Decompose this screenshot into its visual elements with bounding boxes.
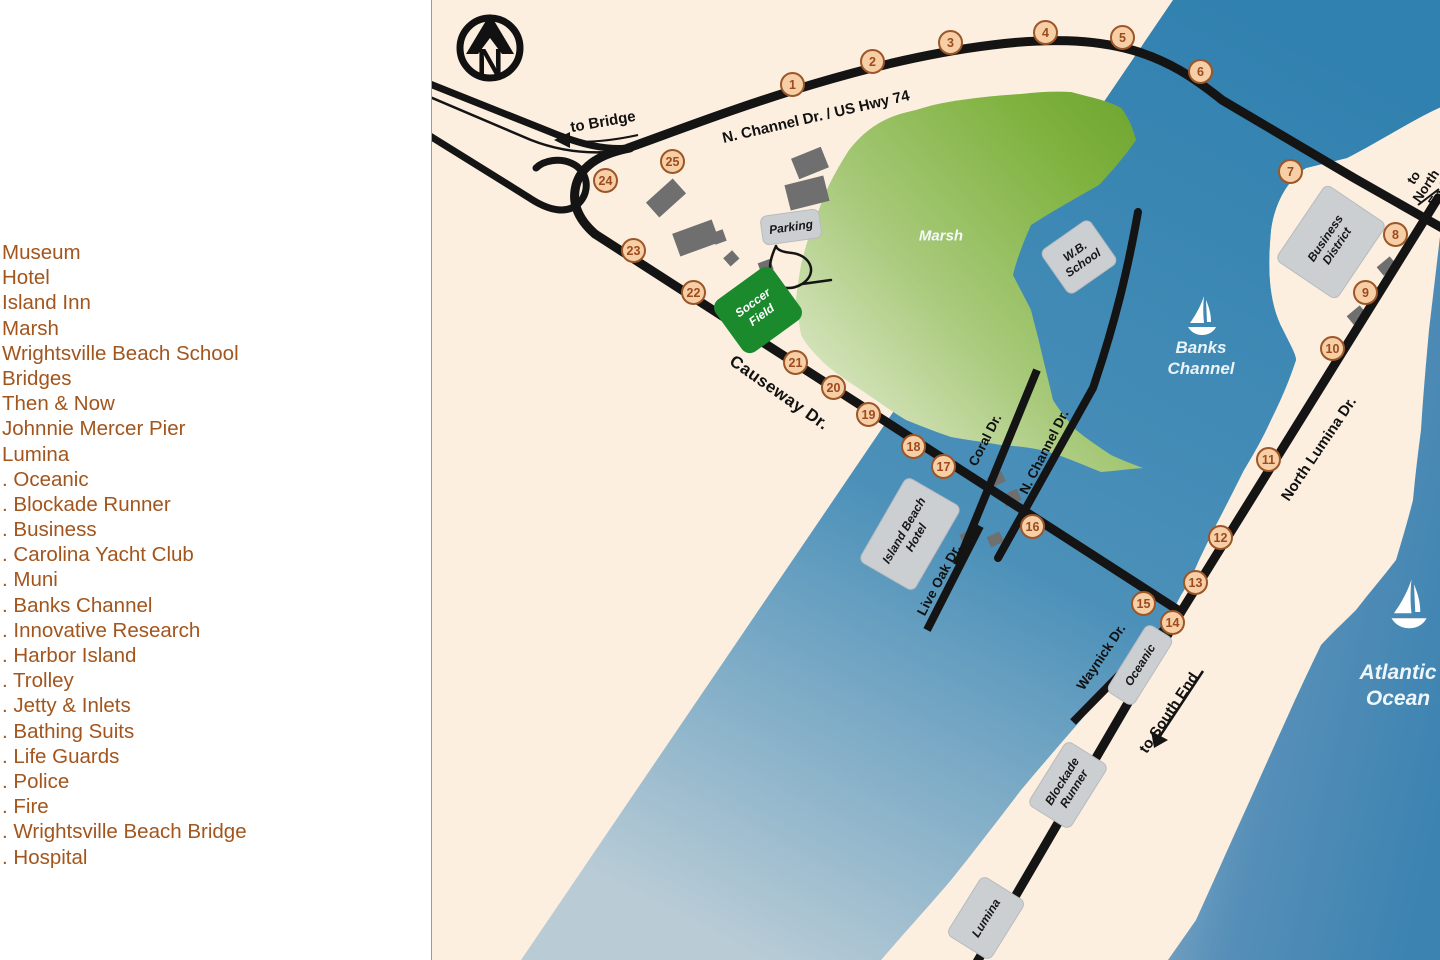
legend-item: . Blockade Runner bbox=[2, 492, 422, 517]
legend-item: . Trolley bbox=[2, 668, 422, 693]
legend-item: . Carolina Yacht Club bbox=[2, 542, 422, 567]
map-marker-19: 19 bbox=[856, 402, 881, 427]
map-marker-11: 11 bbox=[1256, 447, 1281, 472]
map-marker-10: 10 bbox=[1320, 336, 1345, 361]
legend-item: . Hospital bbox=[2, 845, 422, 870]
legend-item: Lumina bbox=[2, 442, 422, 467]
map-marker-14: 14 bbox=[1160, 610, 1185, 635]
legend-item: . Harbor Island bbox=[2, 643, 422, 668]
map-marker-23: 23 bbox=[621, 238, 646, 263]
business-district-building-label: Business District bbox=[1304, 212, 1357, 272]
wb-school-building-label: W.B. School bbox=[1055, 234, 1104, 280]
lumina-building-label: Lumina bbox=[969, 896, 1003, 940]
map-marker-17: 17 bbox=[931, 454, 956, 479]
atlantic-ocean-label: Atlantic Ocean bbox=[1359, 660, 1436, 712]
map-marker-21: 21 bbox=[783, 350, 808, 375]
map-marker-13: 13 bbox=[1183, 570, 1208, 595]
map-marker-15: 15 bbox=[1131, 591, 1156, 616]
legend-item: . Fire bbox=[2, 794, 422, 819]
legend-item: . Life Guards bbox=[2, 744, 422, 769]
legend-item: . Muni bbox=[2, 567, 422, 592]
legend-item: . Oceanic bbox=[2, 467, 422, 492]
page: { "legend": { "items": [ "Museum", "Hote… bbox=[0, 0, 1440, 960]
north-compass-icon: N bbox=[460, 14, 520, 82]
banks-channel-label: Banks Channel bbox=[1167, 337, 1234, 379]
legend-item: Hotel bbox=[2, 265, 422, 290]
map-marker-24: 24 bbox=[593, 168, 618, 193]
svg-text:N: N bbox=[477, 41, 503, 82]
legend-item: . Bathing Suits bbox=[2, 719, 422, 744]
map-marker-5: 5 bbox=[1110, 25, 1135, 50]
map-marker-2: 2 bbox=[860, 49, 885, 74]
map-marker-6: 6 bbox=[1188, 59, 1213, 84]
map-marker-1: 1 bbox=[780, 72, 805, 97]
map-marker-22: 22 bbox=[681, 280, 706, 305]
legend-item: . Innovative Research bbox=[2, 618, 422, 643]
map: Soccer Field bbox=[431, 0, 1440, 960]
legend-item: Island Inn bbox=[2, 290, 422, 315]
legend-item: . Wrightsville Beach Bridge bbox=[2, 819, 422, 844]
legend-item: . Police bbox=[2, 769, 422, 794]
parking-building-label: Parking bbox=[768, 217, 814, 237]
legend-list: MuseumHotelIsland InnMarshWrightsville B… bbox=[0, 240, 422, 870]
legend-item: Museum bbox=[2, 240, 422, 265]
legend-item: Then & Now bbox=[2, 391, 422, 416]
legend-item: Bridges bbox=[2, 366, 422, 391]
map-marker-20: 20 bbox=[821, 375, 846, 400]
legend-item: . Business bbox=[2, 517, 422, 542]
map-marker-9: 9 bbox=[1353, 280, 1378, 305]
legend-item: . Banks Channel bbox=[2, 593, 422, 618]
legend-item: Johnnie Mercer Pier bbox=[2, 416, 422, 441]
map-marker-16: 16 bbox=[1020, 514, 1045, 539]
map-marker-18: 18 bbox=[901, 434, 926, 459]
marsh-label: Marsh bbox=[919, 228, 963, 245]
legend-item: . Jetty & Inlets bbox=[2, 693, 422, 718]
map-marker-4: 4 bbox=[1033, 20, 1058, 45]
legend-item: Marsh bbox=[2, 316, 422, 341]
map-marker-8: 8 bbox=[1383, 222, 1408, 247]
map-marker-3: 3 bbox=[938, 30, 963, 55]
map-marker-25: 25 bbox=[660, 149, 685, 174]
map-marker-12: 12 bbox=[1208, 525, 1233, 550]
legend-item: Wrightsville Beach School bbox=[2, 341, 422, 366]
map-marker-7: 7 bbox=[1278, 159, 1303, 184]
